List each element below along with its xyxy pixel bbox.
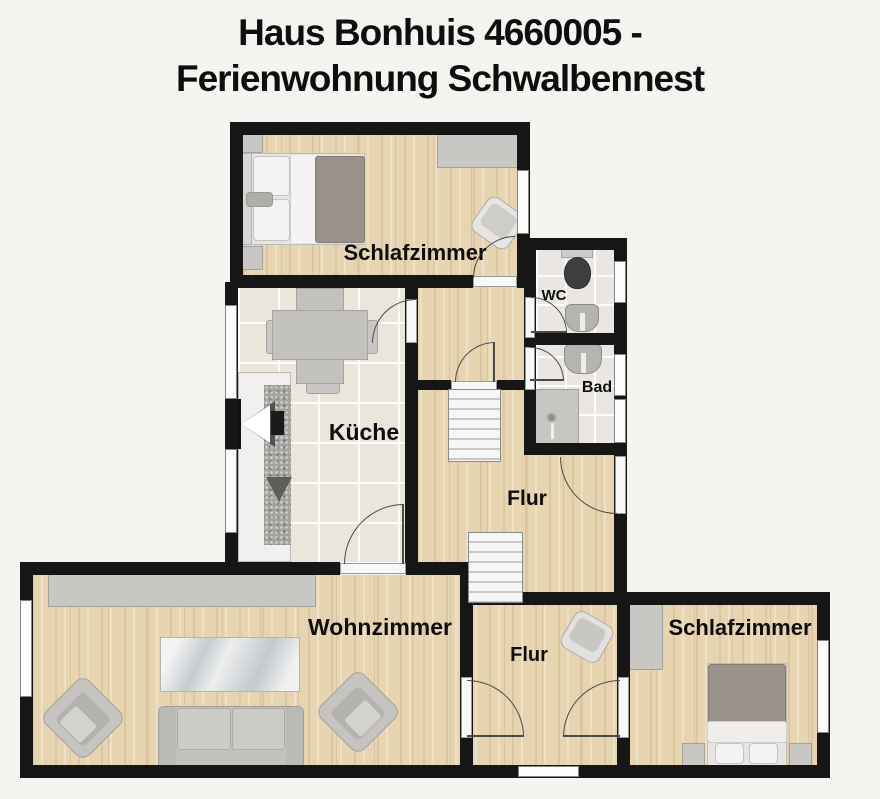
bed-pillow xyxy=(253,156,290,196)
door-threshold xyxy=(340,563,406,574)
window xyxy=(614,399,626,443)
plan-title-line1: Haus Bonhuis 4660005 - xyxy=(0,10,880,56)
window xyxy=(614,354,626,396)
bed-cushion xyxy=(246,192,273,207)
window xyxy=(225,449,237,533)
bed-duvet xyxy=(315,156,365,243)
door-leaf xyxy=(530,379,564,381)
sideboard-icon xyxy=(48,570,316,607)
wall xyxy=(230,275,473,288)
window xyxy=(20,600,32,697)
room-label-bedroom-bottom: Schlafzimmer xyxy=(668,615,811,641)
room-label-hallway-middle: Flur xyxy=(507,487,547,511)
floor-plan: Haus Bonhuis 4660005 - Ferienwohnung Sch… xyxy=(0,0,880,799)
window xyxy=(225,305,237,399)
wall xyxy=(20,765,830,778)
sink-icon xyxy=(564,344,602,374)
door-leaf xyxy=(402,504,404,564)
double-bed-icon xyxy=(240,153,365,245)
door-leaf xyxy=(493,342,495,382)
window xyxy=(518,766,579,777)
wall xyxy=(524,333,627,345)
double-bed-icon xyxy=(707,663,787,767)
door-leaf xyxy=(531,331,567,333)
room-label-hallway-bottom: Flur xyxy=(510,644,548,667)
sofa-icon xyxy=(158,706,304,769)
chair-icon xyxy=(306,383,340,394)
window xyxy=(517,170,529,234)
nightstand-icon xyxy=(789,743,812,766)
wall xyxy=(524,238,627,250)
staircase-icon xyxy=(468,532,523,603)
sink-icon xyxy=(565,304,599,332)
room-label-kitchen: Küche xyxy=(329,419,399,446)
room-label-wc: WC xyxy=(542,287,567,304)
wall xyxy=(230,122,243,288)
nightstand-icon xyxy=(682,743,705,766)
wall xyxy=(230,122,530,135)
window xyxy=(614,261,626,303)
plan-title-line2: Ferienwohnung Schwalbennest xyxy=(0,56,880,102)
door-leaf xyxy=(563,735,620,737)
bed-sheet xyxy=(290,155,318,243)
wall xyxy=(20,562,340,575)
door-leaf xyxy=(467,735,524,737)
staircase-icon xyxy=(448,389,501,462)
tv-cone-inner xyxy=(241,405,270,443)
tv-box xyxy=(271,411,284,435)
wall xyxy=(411,380,451,390)
room-label-living-room: Wohnzimmer xyxy=(308,614,452,641)
window xyxy=(817,640,829,733)
wardrobe-icon xyxy=(437,133,523,168)
plan-title: Haus Bonhuis 4660005 - Ferienwohnung Sch… xyxy=(0,10,880,102)
toilet-icon xyxy=(564,257,591,289)
room-label-bedroom-top: Schlafzimmer xyxy=(343,240,486,266)
dining-table-icon xyxy=(272,288,368,384)
wall xyxy=(524,443,627,455)
coffee-table-icon xyxy=(160,637,300,692)
room-label-bathroom: Bad xyxy=(582,379,612,397)
